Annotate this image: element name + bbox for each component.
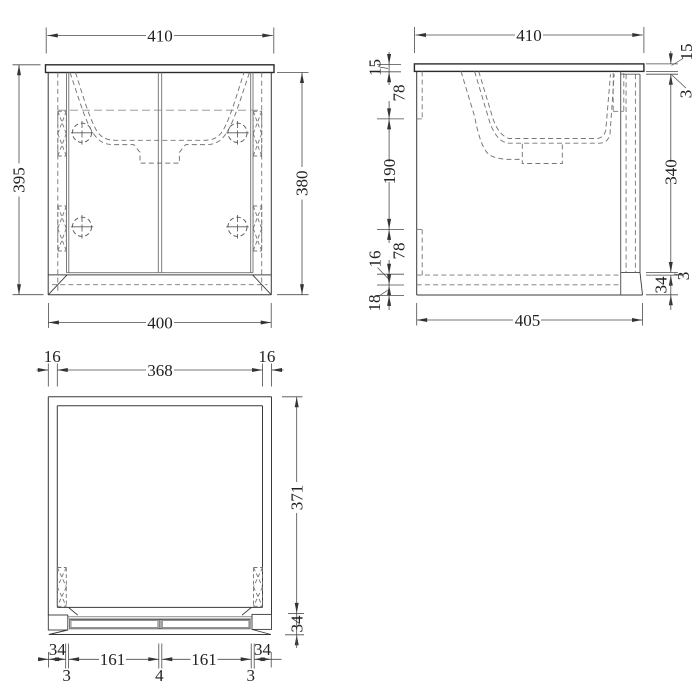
svg-text:16: 16 bbox=[366, 251, 385, 268]
svg-text:34: 34 bbox=[652, 276, 671, 294]
svg-text:190: 190 bbox=[380, 159, 399, 185]
svg-text:34: 34 bbox=[254, 640, 272, 659]
svg-text:3: 3 bbox=[674, 272, 693, 281]
svg-text:34: 34 bbox=[49, 640, 67, 659]
svg-text:368: 368 bbox=[147, 361, 173, 380]
svg-text:16: 16 bbox=[258, 347, 275, 366]
svg-text:78: 78 bbox=[390, 243, 409, 260]
svg-text:161: 161 bbox=[100, 650, 126, 669]
svg-text:405: 405 bbox=[515, 311, 541, 330]
svg-text:78: 78 bbox=[390, 85, 409, 102]
svg-text:16: 16 bbox=[44, 347, 61, 366]
svg-text:395: 395 bbox=[10, 167, 29, 193]
svg-text:15: 15 bbox=[677, 44, 696, 61]
svg-text:410: 410 bbox=[516, 26, 542, 45]
svg-text:3: 3 bbox=[247, 666, 256, 685]
svg-text:161: 161 bbox=[191, 650, 217, 669]
svg-text:18: 18 bbox=[365, 295, 384, 312]
svg-text:410: 410 bbox=[147, 26, 173, 45]
svg-text:3: 3 bbox=[677, 90, 696, 99]
svg-text:4: 4 bbox=[155, 666, 164, 685]
svg-text:3: 3 bbox=[62, 666, 71, 685]
svg-text:371: 371 bbox=[288, 485, 307, 511]
svg-text:400: 400 bbox=[147, 313, 173, 332]
svg-text:34: 34 bbox=[287, 615, 306, 633]
svg-text:380: 380 bbox=[293, 171, 312, 197]
svg-text:340: 340 bbox=[662, 159, 681, 185]
